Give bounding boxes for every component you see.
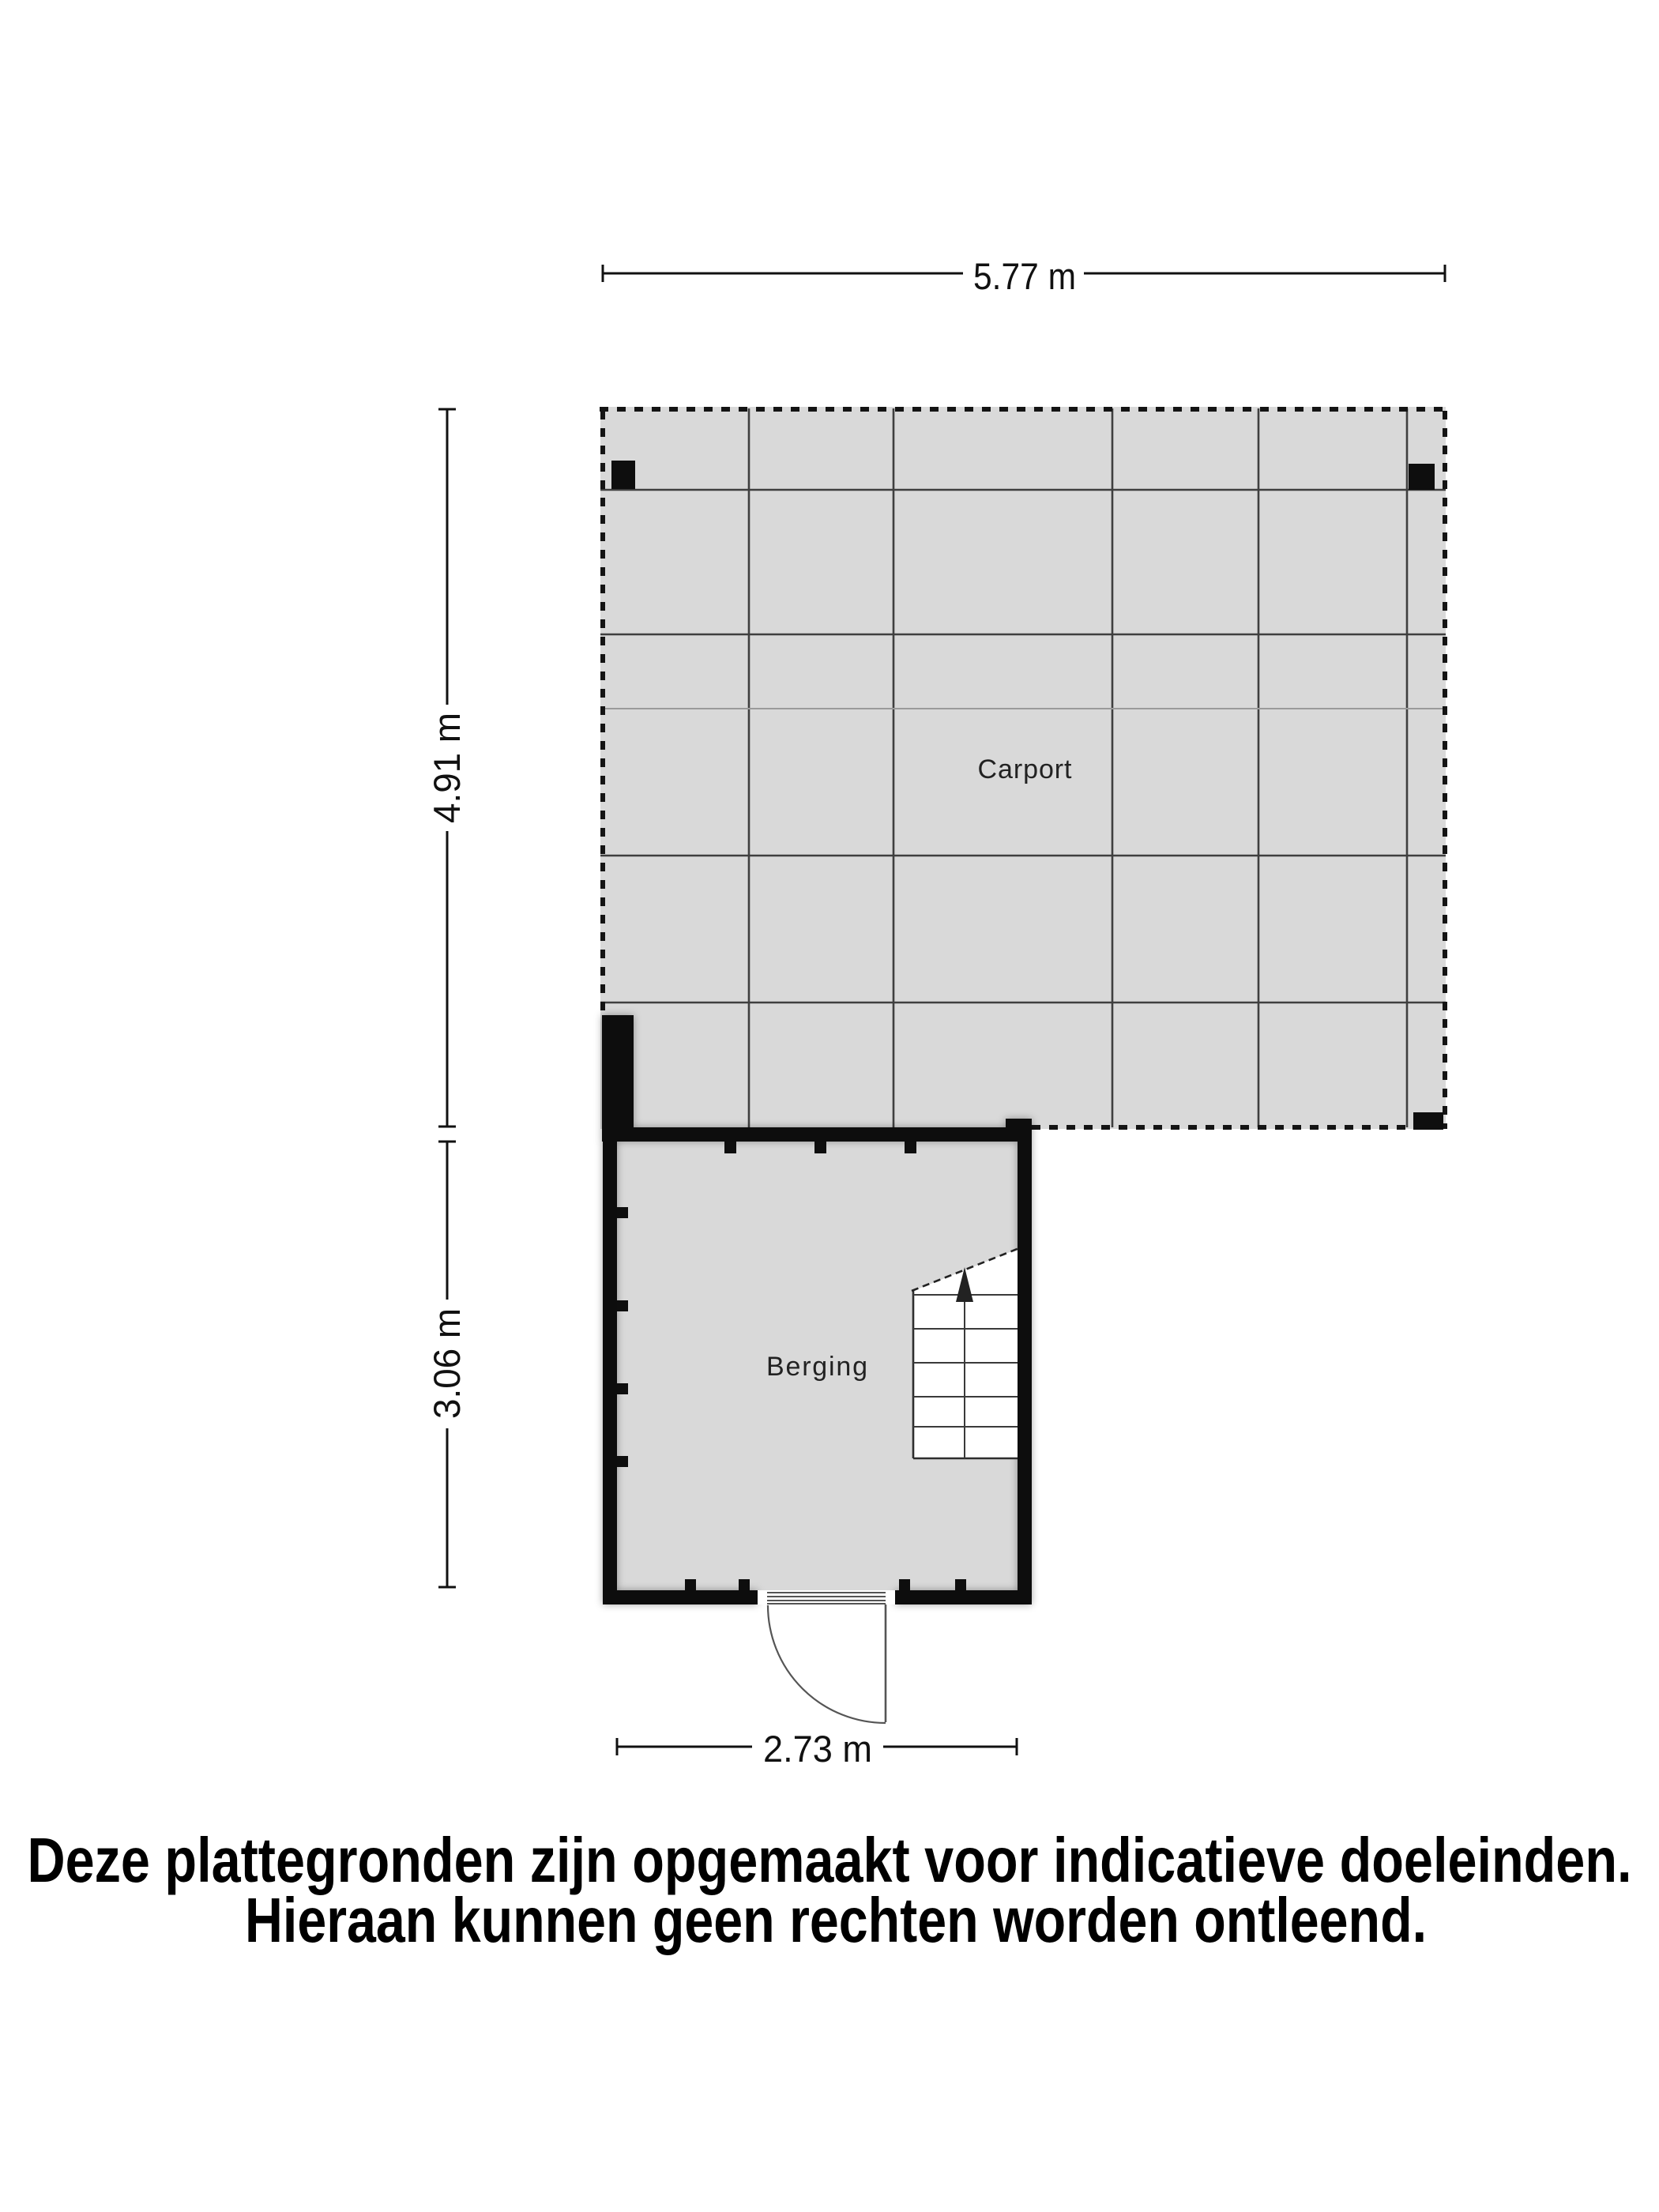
svg-text:Carport: Carport	[978, 754, 1073, 784]
svg-text:3.06 m: 3.06 m	[426, 1308, 468, 1419]
svg-text:Berging: Berging	[766, 1352, 867, 1382]
svg-text:4.91 m: 4.91 m	[426, 713, 468, 823]
svg-text:2.73 m: 2.73 m	[763, 1728, 872, 1770]
svg-text:Hieraan kunnen geen rechten wo: Hieraan kunnen geen rechten worden ontle…	[245, 1885, 1427, 1955]
svg-text:5.77 m: 5.77 m	[973, 255, 1076, 297]
